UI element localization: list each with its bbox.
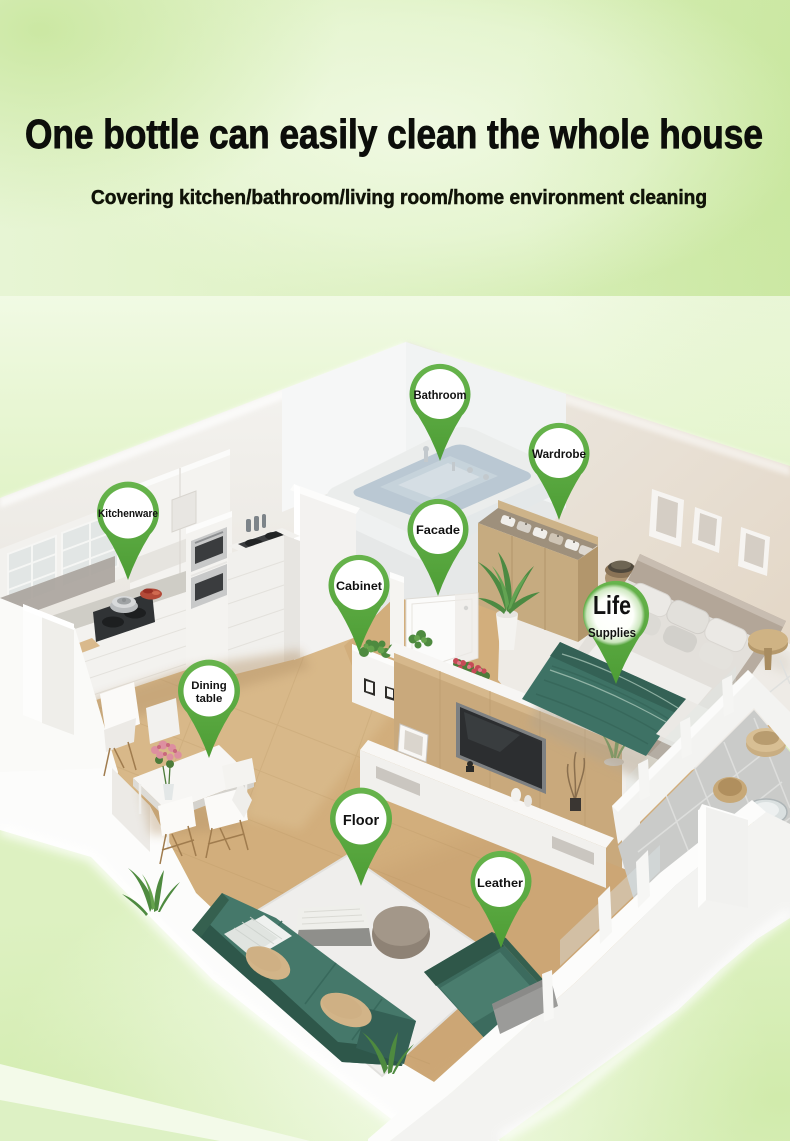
svg-text:table: table xyxy=(196,693,223,705)
svg-text:Bathroom: Bathroom xyxy=(414,388,467,402)
svg-text:Leather: Leather xyxy=(477,877,524,890)
svg-text:Life: Life xyxy=(593,590,631,620)
svg-text:Supplies: Supplies xyxy=(588,626,636,640)
svg-text:Facade: Facade xyxy=(416,523,460,537)
svg-text:Floor: Floor xyxy=(343,813,380,829)
svg-text:One bottle can easily clean th: One bottle can easily clean the whole ho… xyxy=(25,111,763,157)
svg-text:Cabinet: Cabinet xyxy=(336,579,382,593)
svg-text:Wardrobe: Wardrobe xyxy=(532,447,586,461)
svg-text:Covering kitchen/bathroom/livi: Covering kitchen/bathroom/living room/ho… xyxy=(91,187,707,209)
svg-text:Kitchenware: Kitchenware xyxy=(98,508,158,520)
svg-text:Dining: Dining xyxy=(191,680,226,692)
